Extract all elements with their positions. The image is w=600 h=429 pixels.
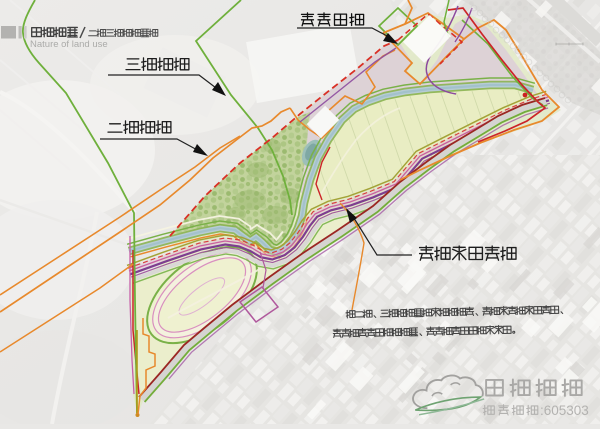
svg-text:Nature of land use: Nature of land use: [30, 39, 108, 50]
svg-text::605303: :605303: [540, 403, 589, 418]
